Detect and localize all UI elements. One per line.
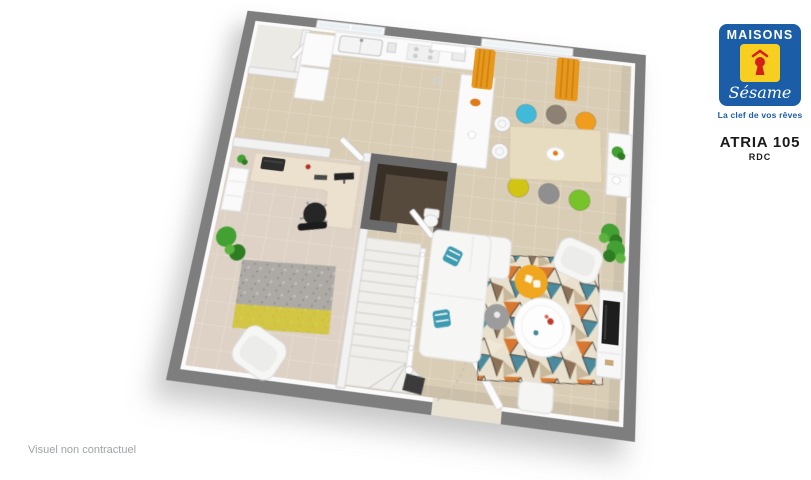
tall-cabinet-pantry [294, 66, 330, 101]
sideboard [606, 132, 632, 197]
keyhole-glyph [745, 48, 775, 78]
curtain-right [554, 57, 579, 101]
plan-level-label: RDC [712, 152, 808, 162]
disclaimer-text: Visuel non contractuel [28, 444, 136, 456]
brand-name-script: Sésame [729, 85, 792, 102]
floor-plan-svg [166, 11, 646, 442]
curtain-left [471, 48, 496, 90]
tall-cabinet-fridge [300, 32, 335, 68]
plate [468, 131, 476, 139]
sofa-pillow [432, 309, 451, 329]
floor-plan-3d [166, 11, 646, 442]
office-rug [232, 260, 336, 335]
plan-model-title: ATRIA 105 [712, 134, 808, 151]
keyhole-icon [740, 44, 780, 82]
brand-tagline: La clef de vos rêves [712, 110, 808, 120]
brand-logo: MAISONS Sésame [719, 24, 801, 106]
coffee-machine [387, 43, 397, 53]
vase [612, 176, 620, 185]
keyboard [314, 175, 327, 180]
tv-unit [596, 289, 625, 379]
ottoman [517, 380, 554, 414]
brand-name-top: MAISONS [727, 29, 794, 42]
brand-block: MAISONS Sésame La clef de vos rêves ATRI… [712, 24, 808, 162]
decor-box [605, 359, 614, 366]
page: MAISONS Sésame La clef de vos rêves ATRI… [0, 0, 811, 480]
dining-table [509, 126, 602, 183]
